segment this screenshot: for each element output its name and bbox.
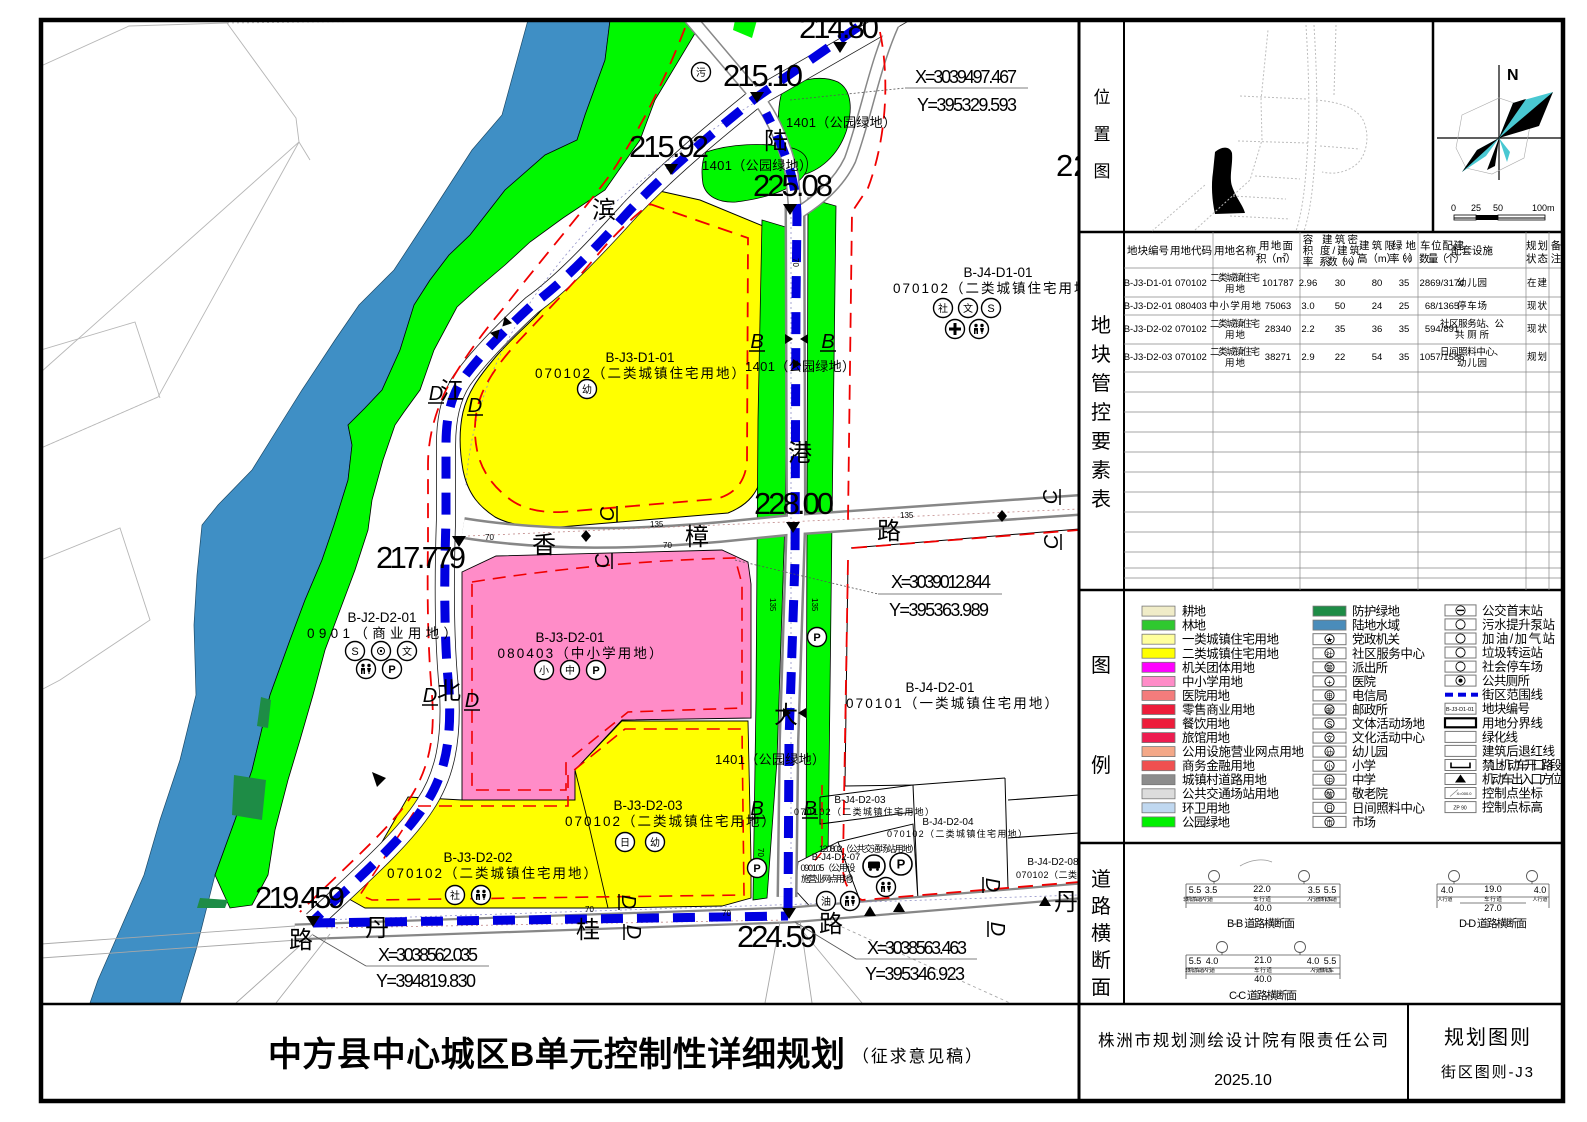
svg-text:幼儿园: 幼儿园 xyxy=(1457,357,1487,369)
svg-text:人行道非机动车道: 人行道非机动车道 xyxy=(1307,896,1337,903)
svg-text:28340: 28340 xyxy=(1265,324,1291,335)
svg-text:丹: 丹 xyxy=(1054,889,1078,916)
svg-text:株洲市规划测绘设计院有限责任公司: 株洲市规划测绘设计院有限责任公司 xyxy=(1098,1031,1388,1050)
svg-text:地块编号: 地块编号 xyxy=(1127,244,1169,257)
svg-text:小: 小 xyxy=(1326,762,1333,771)
svg-text:小: 小 xyxy=(539,665,549,677)
svg-text:135: 135 xyxy=(900,511,914,520)
svg-text:机关团体用地: 机关团体用地 xyxy=(1182,661,1255,675)
svg-text:D: D xyxy=(423,685,437,707)
svg-text:22: 22 xyxy=(1335,352,1346,363)
svg-text:备: 备 xyxy=(1551,239,1562,252)
svg-text:D: D xyxy=(429,383,443,405)
svg-text:餐饮用地: 餐饮用地 xyxy=(1182,716,1230,731)
svg-text:B-J3-D1-01: B-J3-D1-01 xyxy=(605,350,674,365)
svg-text:B: B xyxy=(821,331,834,353)
svg-text:40.0: 40.0 xyxy=(1254,974,1272,984)
svg-text:N: N xyxy=(1507,67,1519,84)
svg-text:在建: 在建 xyxy=(1527,277,1547,289)
svg-text:表: 表 xyxy=(1091,488,1111,511)
svg-text:D: D xyxy=(617,895,639,909)
svg-text:车行道: 车行道 xyxy=(1253,895,1271,903)
svg-text:100m: 100m xyxy=(1532,203,1555,213)
svg-text:管: 管 xyxy=(1091,372,1111,395)
svg-text:070102（二类城镇住宅用地）: 070102（二类城镇住宅用地） xyxy=(565,814,775,829)
svg-text:公共厕所: 公共厕所 xyxy=(1482,674,1530,688)
svg-text:用地: 用地 xyxy=(1225,329,1245,341)
svg-text:B-J3-D2-01: B-J3-D2-01 xyxy=(1124,301,1173,312)
svg-text:0: 0 xyxy=(1451,203,1456,213)
svg-text:文: 文 xyxy=(402,645,412,658)
svg-text:香: 香 xyxy=(532,532,556,559)
svg-text:1401（公园绿地）: 1401（公园绿地） xyxy=(786,115,896,130)
svg-text:135: 135 xyxy=(650,520,664,529)
svg-text:X=3038563.463: X=3038563.463 xyxy=(867,938,967,958)
svg-text:B-J4-D2-07: B-J4-D2-07 xyxy=(812,852,861,863)
svg-text:路: 路 xyxy=(289,927,313,954)
svg-text:135: 135 xyxy=(810,598,819,612)
svg-text:070101（一类城镇住宅用地）: 070101（一类城镇住宅用地） xyxy=(846,696,1058,711)
svg-text:林地: 林地 xyxy=(1182,619,1206,633)
svg-text:70: 70 xyxy=(722,909,731,918)
svg-text:陆地水域: 陆地水域 xyxy=(1352,618,1400,633)
svg-text:社会停车场: 社会停车场 xyxy=(1482,659,1543,674)
svg-text:公园绿地: 公园绿地 xyxy=(1182,814,1230,829)
svg-text:080403（中小学用地）: 080403（中小学用地） xyxy=(498,646,663,661)
svg-text:B-J3-D2-02: B-J3-D2-02 xyxy=(443,850,512,865)
svg-text:社: 社 xyxy=(938,302,948,315)
svg-text:070102: 070102 xyxy=(1175,352,1207,363)
svg-text:控制点标高: 控制点标高 xyxy=(1482,800,1543,815)
svg-text:文: 文 xyxy=(1326,734,1333,743)
svg-text:B-J2-D2-01: B-J2-D2-01 xyxy=(347,610,416,625)
svg-text:控制点坐标: 控制点坐标 xyxy=(1482,787,1543,801)
svg-text:商务金融用地: 商务金融用地 xyxy=(1182,758,1255,773)
svg-text:北: 北 xyxy=(437,678,461,705)
svg-text:35: 35 xyxy=(1335,324,1346,335)
svg-text:街区范围线: 街区范围线 xyxy=(1482,688,1543,702)
svg-text:P: P xyxy=(813,632,820,644)
svg-text:070102: 070102 xyxy=(1175,324,1207,335)
svg-text:人行道: 人行道 xyxy=(1533,896,1548,903)
svg-text:S: S xyxy=(987,303,994,315)
svg-text:228.00: 228.00 xyxy=(754,486,834,521)
svg-text:070102（二类城镇住宅用地）: 070102（二类城镇住宅用地） xyxy=(535,366,745,381)
svg-text:车行道: 车行道 xyxy=(1254,966,1272,974)
svg-text:电信局: 电信局 xyxy=(1352,689,1388,703)
svg-text:控: 控 xyxy=(1091,401,1111,424)
svg-text:X=000.0: X=000.0 xyxy=(1456,791,1472,796)
svg-text:Y=395363.989: Y=395363.989 xyxy=(889,600,989,620)
svg-text:25: 25 xyxy=(1399,301,1410,312)
svg-text:邮: 邮 xyxy=(1326,706,1333,715)
svg-text:4.0: 4.0 xyxy=(1206,956,1219,966)
svg-text:率（%）: 率（%） xyxy=(1389,252,1419,265)
svg-text:70: 70 xyxy=(791,258,800,267)
svg-text:用地代码: 用地代码 xyxy=(1170,244,1212,257)
svg-text:滨: 滨 xyxy=(592,197,616,224)
svg-text:图: 图 xyxy=(1091,655,1111,677)
svg-text:断: 断 xyxy=(1091,949,1111,972)
svg-text:一类城镇住宅用地: 一类城镇住宅用地 xyxy=(1182,632,1279,647)
svg-text:（征求意见稿）: （征求意见稿） xyxy=(852,1047,982,1066)
svg-text:215.10: 215.10 xyxy=(723,58,803,93)
svg-text:80: 80 xyxy=(1372,278,1383,289)
svg-text:派出所: 派出所 xyxy=(1352,661,1388,675)
svg-text:面: 面 xyxy=(1091,977,1111,999)
svg-text:环卫用地: 环卫用地 xyxy=(1182,801,1230,815)
svg-text:1401（公园绿地）: 1401（公园绿地） xyxy=(715,752,825,767)
svg-text:B-J4-D2-08: B-J4-D2-08 xyxy=(1027,857,1079,868)
svg-text:人行道非机动车: 人行道非机动车 xyxy=(1310,967,1334,974)
svg-text:070102: 070102 xyxy=(1175,278,1207,289)
svg-text:5.5: 5.5 xyxy=(1324,956,1337,966)
svg-text:现状: 现状 xyxy=(1527,323,1547,335)
svg-text:中学: 中学 xyxy=(1352,772,1376,787)
svg-text:置: 置 xyxy=(1094,125,1111,144)
svg-text:社区服务中心: 社区服务中心 xyxy=(1352,646,1425,661)
svg-text:路: 路 xyxy=(819,911,843,938)
svg-text:70: 70 xyxy=(485,533,494,542)
svg-text:Y=395346.923: Y=395346.923 xyxy=(865,964,965,984)
svg-text:1401（公园绿地）: 1401（公园绿地） xyxy=(745,359,855,374)
svg-text:幼儿园: 幼儿园 xyxy=(1352,745,1388,759)
svg-text:状态: 状态 xyxy=(1526,252,1549,265)
svg-text:地块编号: 地块编号 xyxy=(1482,701,1530,716)
svg-text:B-J3-D2-02: B-J3-D2-02 xyxy=(1124,324,1173,335)
svg-text:率: 率 xyxy=(1303,255,1314,268)
svg-text:75063: 75063 xyxy=(1265,301,1291,312)
svg-text:X=3039012.844: X=3039012.844 xyxy=(891,572,991,592)
svg-text:二类城镇住宅用地: 二类城镇住宅用地 xyxy=(1182,646,1279,661)
svg-text:配套设施: 配套设施 xyxy=(1451,244,1494,257)
svg-text:公共交通场站用地: 公共交通场站用地 xyxy=(1182,786,1279,801)
svg-text:5.5: 5.5 xyxy=(1324,885,1337,895)
svg-text:2.9: 2.9 xyxy=(1301,352,1314,363)
svg-text:邮政所: 邮政所 xyxy=(1352,703,1388,717)
svg-text:樟: 樟 xyxy=(685,524,709,551)
svg-text:江: 江 xyxy=(440,378,464,405)
svg-text:219.459: 219.459 xyxy=(255,880,345,915)
svg-text:禁止机动车开口路段: 禁止机动车开口路段 xyxy=(1482,758,1562,773)
svg-text:积（㎡）: 积（㎡） xyxy=(1256,253,1296,265)
svg-text:5.5: 5.5 xyxy=(1189,956,1202,966)
svg-text:污: 污 xyxy=(696,67,706,79)
svg-text:文: 文 xyxy=(963,302,973,315)
svg-text:规划: 规划 xyxy=(1527,351,1547,363)
svg-text:080403: 080403 xyxy=(1175,301,1207,312)
svg-text:P: P xyxy=(592,665,599,677)
svg-text:★: ★ xyxy=(1326,636,1333,645)
svg-text:P: P xyxy=(753,863,760,875)
svg-text:070102（二类城镇住宅用地）: 070102（二类城镇住宅用地） xyxy=(893,281,1103,296)
svg-text:21.0: 21.0 xyxy=(1254,955,1272,965)
svg-text:系数（%）: 系数（%） xyxy=(1319,255,1361,268)
svg-text:用地名称: 用地名称 xyxy=(1214,244,1257,257)
svg-text:30: 30 xyxy=(1335,278,1346,289)
svg-text:54: 54 xyxy=(1372,352,1383,363)
svg-text:规划: 规划 xyxy=(1526,239,1548,252)
svg-text:C: C xyxy=(592,553,614,568)
svg-text:陆: 陆 xyxy=(764,128,788,155)
svg-text:二类城镇住宅: 二类城镇住宅 xyxy=(1210,272,1260,284)
svg-text:3.5: 3.5 xyxy=(1308,885,1321,895)
svg-text:港: 港 xyxy=(788,440,812,467)
svg-text:道: 道 xyxy=(1091,868,1111,891)
svg-text:36: 36 xyxy=(1372,324,1383,335)
svg-text:防护绿地: 防护绿地 xyxy=(1352,604,1400,619)
svg-text:现状: 现状 xyxy=(1527,300,1547,312)
svg-text:70: 70 xyxy=(756,848,765,857)
svg-text:要: 要 xyxy=(1091,431,1111,453)
svg-text:路: 路 xyxy=(1091,895,1111,918)
svg-text:共厕所: 共厕所 xyxy=(1455,330,1489,341)
svg-text:50: 50 xyxy=(1335,301,1346,312)
svg-text:公用设施营业网点用地: 公用设施营业网点用地 xyxy=(1182,744,1304,759)
svg-text:日: 日 xyxy=(620,838,630,849)
svg-text:070102（二类城镇住宅用地）: 070102（二类城镇住宅用地） xyxy=(387,866,597,881)
svg-text:非机动车道人行道: 非机动车道人行道 xyxy=(1185,967,1215,974)
svg-text:日间照料中心: 日间照料中心 xyxy=(1352,800,1425,815)
svg-text:用地: 用地 xyxy=(1225,357,1245,369)
svg-text:B-J4-D2-03: B-J4-D2-03 xyxy=(834,795,886,806)
svg-text:加油/加气站: 加油/加气站 xyxy=(1482,631,1555,646)
svg-text:敬: 敬 xyxy=(1326,790,1333,799)
svg-text:例: 例 xyxy=(1091,754,1111,777)
svg-text:Y=395329.593: Y=395329.593 xyxy=(917,95,1017,115)
svg-text:4.0: 4.0 xyxy=(1307,956,1320,966)
svg-text:19.0: 19.0 xyxy=(1484,884,1502,894)
svg-text:地: 地 xyxy=(1091,314,1111,337)
svg-text:零售商业用地: 零售商业用地 xyxy=(1182,702,1255,717)
svg-text:用地面: 用地面 xyxy=(1259,239,1293,252)
svg-text:224.59: 224.59 xyxy=(737,919,817,954)
svg-text:中: 中 xyxy=(565,664,575,677)
svg-text:街区图则-J3: 街区图则-J3 xyxy=(1441,1064,1533,1081)
svg-text:文化活动中心: 文化活动中心 xyxy=(1352,730,1425,745)
svg-text:公交首末站: 公交首末站 xyxy=(1482,603,1543,618)
svg-text:4.0: 4.0 xyxy=(1534,885,1547,895)
svg-text:27.0: 27.0 xyxy=(1484,903,1502,913)
svg-text:D: D xyxy=(986,922,1008,936)
svg-text:25: 25 xyxy=(1471,203,1481,213)
svg-text:城镇村道路用地: 城镇村道路用地 xyxy=(1182,772,1267,787)
svg-text:B-J4-D2-01: B-J4-D2-01 xyxy=(905,680,974,695)
svg-text:B-J3-D2-01: B-J3-D2-01 xyxy=(535,630,604,645)
svg-text:丹: 丹 xyxy=(365,915,389,942)
svg-text:2.96: 2.96 xyxy=(1299,278,1318,289)
svg-text:注: 注 xyxy=(1551,252,1562,265)
svg-text:D: D xyxy=(981,878,1003,892)
svg-text:35: 35 xyxy=(1399,324,1410,335)
svg-text:C-C 道路横断面: C-C 道路横断面 xyxy=(1229,988,1297,1002)
svg-text:50: 50 xyxy=(1493,203,1503,213)
svg-text:中方县中心城区B单元控制性详细规划: 中方县中心城区B单元控制性详细规划 xyxy=(268,1036,845,1074)
svg-text:日间照料中心、: 日间照料中心、 xyxy=(1440,346,1504,358)
svg-text:绿化线: 绿化线 xyxy=(1482,729,1518,744)
svg-text:社: 社 xyxy=(1326,650,1333,659)
svg-text:人行道: 人行道 xyxy=(1438,896,1453,903)
svg-text:B-J3-D2-03: B-J3-D2-03 xyxy=(613,798,682,813)
svg-text:22.0: 22.0 xyxy=(1253,884,1271,894)
svg-text:D: D xyxy=(465,690,479,712)
svg-text:社: 社 xyxy=(450,889,460,902)
svg-text:中小学用地: 中小学用地 xyxy=(1209,300,1261,312)
svg-text:S: S xyxy=(351,646,358,658)
svg-text:位: 位 xyxy=(1094,88,1111,107)
svg-text:市场: 市场 xyxy=(1352,814,1376,829)
svg-text:党政机关: 党政机关 xyxy=(1352,632,1400,647)
svg-text:1401（公园绿地）: 1401（公园绿地） xyxy=(702,158,812,173)
svg-text:二类城镇住宅: 二类城镇住宅 xyxy=(1210,346,1260,358)
svg-text:幼: 幼 xyxy=(1326,748,1333,757)
svg-text:B-J3-D1-01: B-J3-D1-01 xyxy=(1446,707,1474,713)
svg-text:225.08: 225.08 xyxy=(753,168,833,203)
svg-text:建筑限: 建筑限 xyxy=(1359,239,1396,252)
svg-text:素: 素 xyxy=(1091,459,1111,482)
svg-text:施营业网点用地）: 施营业网点用地） xyxy=(801,873,859,884)
svg-text:用地分界线: 用地分界线 xyxy=(1482,716,1543,730)
svg-text:路: 路 xyxy=(877,518,901,545)
svg-text:24: 24 xyxy=(1372,301,1383,312)
svg-text:幼: 幼 xyxy=(650,836,660,849)
svg-text:35: 35 xyxy=(1399,278,1410,289)
svg-text:C: C xyxy=(597,506,619,521)
svg-text:38271: 38271 xyxy=(1265,352,1291,363)
svg-text:070102（二类城镇住宅用地）: 070102（二类城镇住宅用地） xyxy=(794,806,934,817)
svg-text:C: C xyxy=(1040,489,1062,504)
svg-text:块: 块 xyxy=(1091,343,1111,366)
svg-text:中: 中 xyxy=(1326,776,1333,785)
svg-text:B-J4-D1-01: B-J4-D1-01 xyxy=(963,265,1032,280)
svg-text:幼儿园: 幼儿园 xyxy=(1457,277,1487,289)
svg-text:市: 市 xyxy=(1326,818,1333,827)
svg-text:B-J3-D1-01: B-J3-D1-01 xyxy=(1124,278,1173,289)
svg-text:B-J4-D2-04: B-J4-D2-04 xyxy=(922,817,974,828)
svg-text:D-D 道路横断面: D-D 道路横断面 xyxy=(1459,916,1527,930)
svg-text:污水提升泵站: 污水提升泵站 xyxy=(1482,617,1555,632)
svg-text:3.5: 3.5 xyxy=(1205,885,1218,895)
svg-text:旅馆用地: 旅馆用地 xyxy=(1182,730,1230,745)
svg-text:用地: 用地 xyxy=(1225,283,1245,295)
svg-text:68/1365: 68/1365 xyxy=(1425,301,1459,312)
svg-text:2.2: 2.2 xyxy=(1301,324,1314,335)
svg-text:D: D xyxy=(622,925,644,939)
svg-text:敬老院: 敬老院 xyxy=(1352,787,1388,801)
svg-text:215.92: 215.92 xyxy=(629,129,709,164)
svg-text:70: 70 xyxy=(663,541,672,550)
svg-text:医院: 医院 xyxy=(1352,675,1376,689)
svg-text:3.0: 3.0 xyxy=(1301,301,1314,312)
svg-text:警: 警 xyxy=(1326,664,1333,673)
svg-text:P: P xyxy=(897,857,906,872)
svg-text:医院用地: 医院用地 xyxy=(1182,689,1230,703)
svg-text:B-B 道路横断面: B-B 道路横断面 xyxy=(1227,916,1295,930)
svg-text:桂: 桂 xyxy=(576,917,600,944)
svg-text:5.5: 5.5 xyxy=(1189,885,1202,895)
svg-text:停车场: 停车场 xyxy=(1457,300,1487,312)
svg-text:70: 70 xyxy=(585,905,594,914)
svg-text:非机动车道人行道: 非机动车道人行道 xyxy=(1183,896,1213,903)
svg-text:35: 35 xyxy=(1399,352,1410,363)
svg-text:垃圾转运站: 垃圾转运站 xyxy=(1482,645,1543,660)
svg-text:X=3038562.035: X=3038562.035 xyxy=(378,945,478,965)
svg-text:小学: 小学 xyxy=(1352,758,1376,773)
svg-text:X=3039497.467: X=3039497.467 xyxy=(915,67,1017,87)
svg-text:耕地: 耕地 xyxy=(1182,604,1206,619)
svg-text:Y=394819.830: Y=394819.830 xyxy=(376,971,476,991)
svg-text:B-J3-D2-03: B-J3-D2-03 xyxy=(1124,352,1173,363)
svg-text:中小学用地: 中小学用地 xyxy=(1182,674,1243,689)
svg-text:建筑后退红线: 建筑后退红线 xyxy=(1482,743,1555,758)
svg-text:P: P xyxy=(388,664,395,676)
svg-text:文体活动场地: 文体活动场地 xyxy=(1352,716,1425,731)
svg-text:090105（公用设: 090105（公用设 xyxy=(801,863,856,873)
svg-text:217.779: 217.779 xyxy=(376,540,466,575)
svg-text:二类城镇住宅: 二类城镇住宅 xyxy=(1210,318,1260,330)
svg-text:油: 油 xyxy=(821,895,831,908)
svg-text:机动车出入口方位: 机动车出入口方位 xyxy=(1482,772,1562,787)
svg-text:社区服务站、公: 社区服务站、公 xyxy=(1440,318,1504,330)
svg-text:B: B xyxy=(750,331,763,353)
svg-text:横: 横 xyxy=(1091,922,1111,945)
svg-text:070102（二类城镇住宅用地）: 070102（二类城镇住宅用地） xyxy=(887,828,1027,839)
svg-text:2025.10: 2025.10 xyxy=(1214,1072,1272,1089)
svg-text:135: 135 xyxy=(768,598,777,612)
svg-text:图: 图 xyxy=(1094,162,1111,181)
svg-text:101787: 101787 xyxy=(1262,278,1294,289)
svg-text:幼: 幼 xyxy=(582,383,592,396)
svg-text:C: C xyxy=(1041,534,1063,549)
svg-text:4.0: 4.0 xyxy=(1441,885,1454,895)
svg-text:电: 电 xyxy=(1326,692,1333,701)
svg-text:ZP 90: ZP 90 xyxy=(1453,806,1466,812)
svg-text:车行道: 车行道 xyxy=(1484,895,1502,903)
svg-text:+: + xyxy=(1327,678,1332,687)
svg-text:D: D xyxy=(468,395,482,417)
svg-text:日: 日 xyxy=(1326,805,1333,813)
svg-text:40.0: 40.0 xyxy=(1254,903,1272,913)
svg-text:S: S xyxy=(1327,720,1332,729)
